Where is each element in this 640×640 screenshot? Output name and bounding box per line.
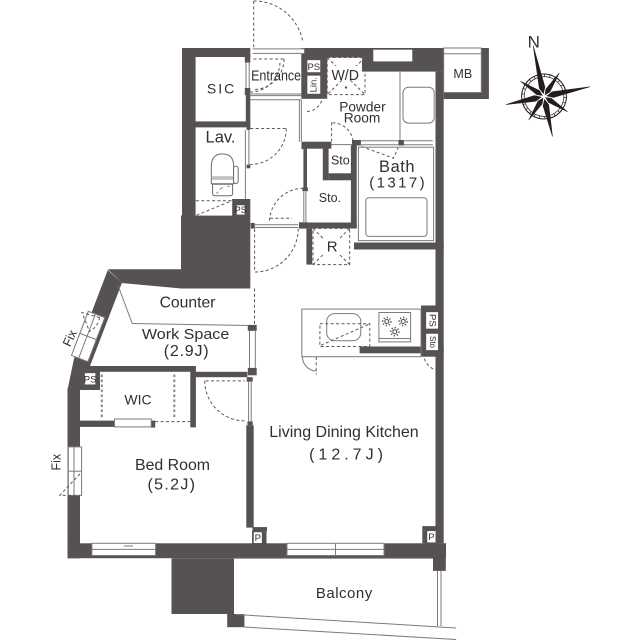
svg-text:(1317): (1317) <box>369 174 427 191</box>
svg-text:MB: MB <box>453 67 472 81</box>
svg-text:PS: PS <box>427 314 438 327</box>
svg-text:W/D: W/D <box>331 68 359 84</box>
svg-text:Counter: Counter <box>160 295 216 312</box>
svg-text:Living Dining Kitchen: Living Dining Kitchen <box>269 424 418 441</box>
svg-text:Room: Room <box>344 110 381 125</box>
svg-text:PS: PS <box>307 62 320 73</box>
svg-text:N: N <box>528 33 540 52</box>
svg-text:Lav.: Lav. <box>206 129 236 147</box>
svg-text:P: P <box>428 532 434 543</box>
svg-text:Bath: Bath <box>379 158 415 176</box>
svg-text:P: P <box>255 533 261 544</box>
svg-text:Lin.: Lin. <box>308 77 319 92</box>
svg-text:PS: PS <box>84 375 97 386</box>
svg-text:R: R <box>327 238 338 255</box>
svg-text:Sto.: Sto. <box>319 191 341 205</box>
svg-text:(2.9J): (2.9J) <box>164 343 210 360</box>
svg-text:Fix: Fix <box>50 453 64 470</box>
svg-text:Sto: Sto <box>428 336 437 349</box>
svg-text:Bed Room: Bed Room <box>135 457 210 474</box>
svg-text:Balcony: Balcony <box>316 585 373 602</box>
svg-text:WIC: WIC <box>124 392 151 408</box>
svg-text:(5.2J): (5.2J) <box>148 476 197 493</box>
svg-text:Work Space: Work Space <box>142 326 230 343</box>
svg-text:PS: PS <box>234 205 247 216</box>
svg-text:Entrance: Entrance <box>251 68 301 84</box>
svg-text:Sto.: Sto. <box>331 154 353 168</box>
svg-text:(12.7J): (12.7J) <box>309 447 387 464</box>
svg-text:SIC: SIC <box>207 81 236 97</box>
